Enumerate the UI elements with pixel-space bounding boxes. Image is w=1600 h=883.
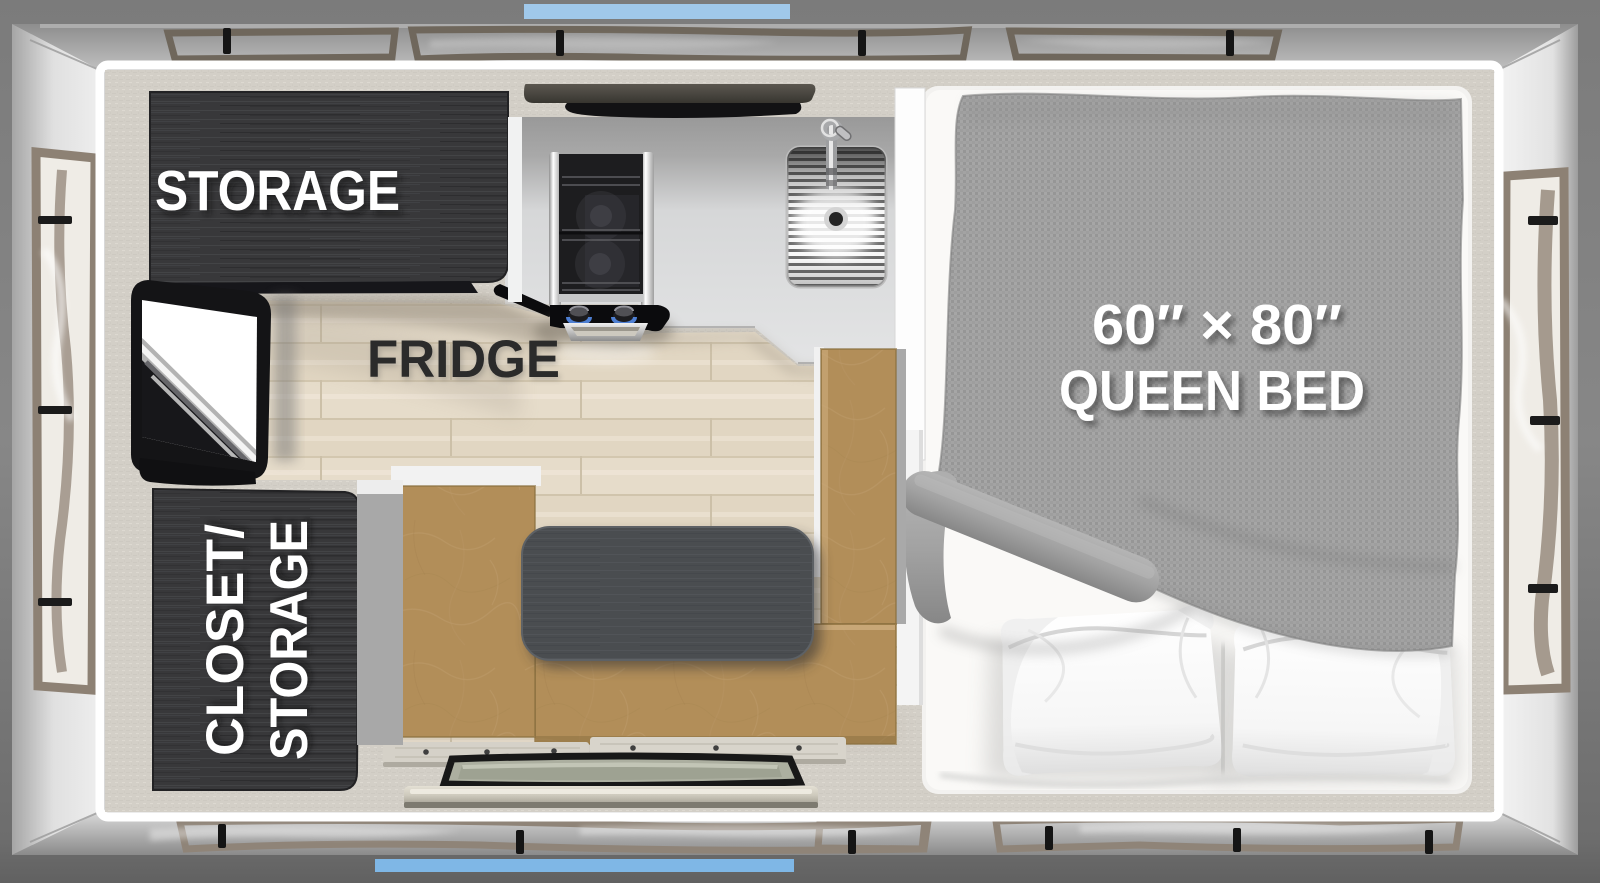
svg-text:60″ × 80″: 60″ × 80″ — [1092, 293, 1342, 357]
svg-text:FRIDGE: FRIDGE — [367, 330, 560, 389]
svg-text:QUEEN BED: QUEEN BED — [1059, 359, 1365, 423]
svg-text:CLOSET/: CLOSET/ — [196, 524, 255, 756]
svg-text:STORAGE: STORAGE — [260, 520, 319, 760]
svg-text:STORAGE: STORAGE — [155, 159, 400, 223]
